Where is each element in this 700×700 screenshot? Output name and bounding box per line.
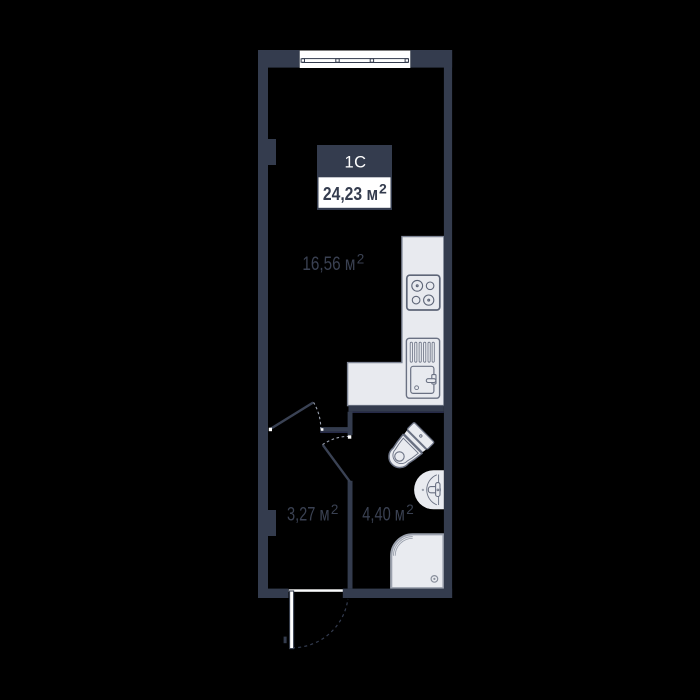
svg-text:2: 2 [331, 502, 339, 517]
svg-text:4,40 м: 4,40 м [362, 505, 405, 526]
svg-text:16,56 м: 16,56 м [302, 254, 355, 275]
svg-text:3,27 м: 3,27 м [287, 505, 330, 526]
svg-text:2: 2 [357, 252, 365, 267]
svg-text:1C: 1C [344, 154, 366, 172]
svg-text:24,23 м: 24,23 м [323, 184, 378, 204]
svg-text:2: 2 [406, 502, 414, 517]
svg-text:2: 2 [379, 180, 387, 196]
